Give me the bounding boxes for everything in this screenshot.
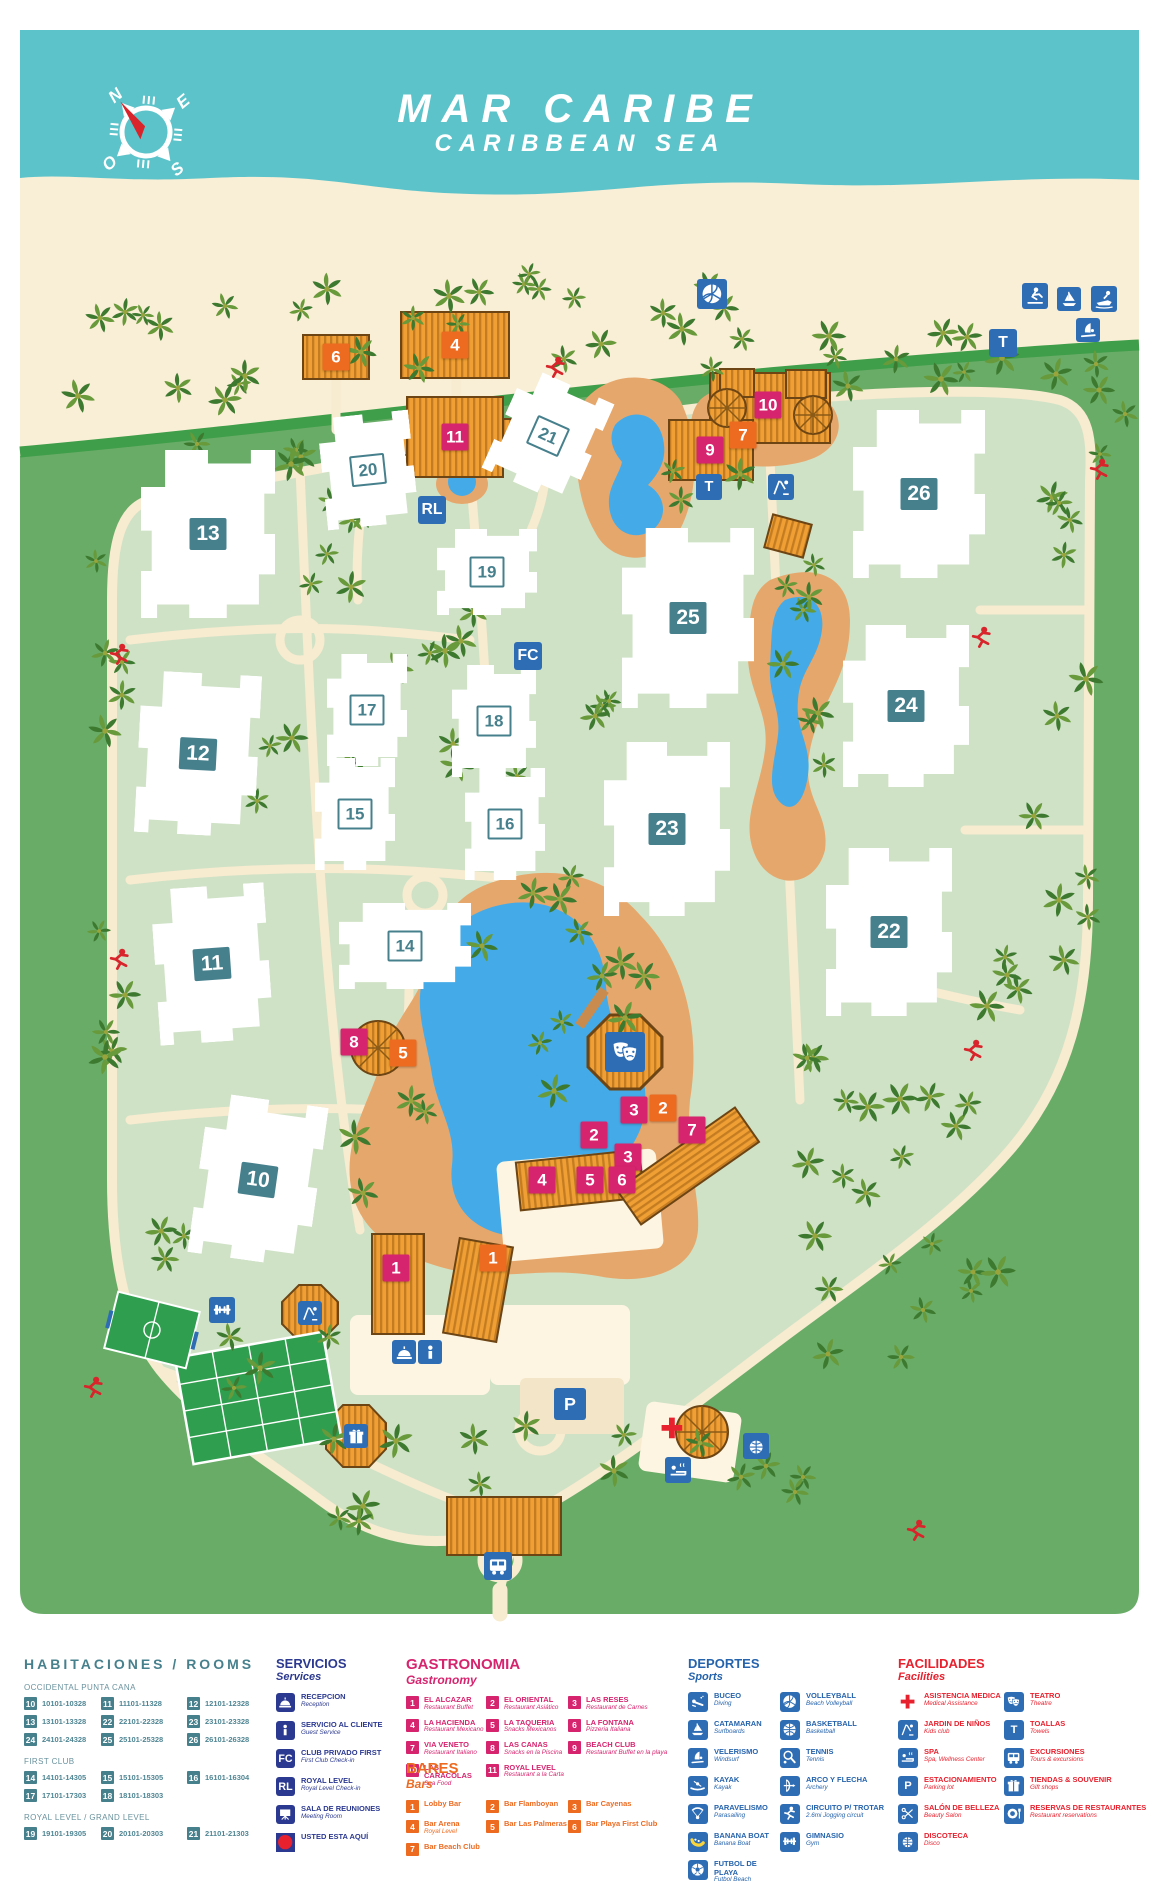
legend-item-volleyball: VOLLEYBALLBeach Volleyball: [780, 1692, 912, 1712]
legend-sublabel: Snacks en la Piscina: [504, 1750, 562, 1757]
legend-item-jardin-de-ni-os: JARDIN DE NIÑOSKids club: [898, 1720, 1004, 1740]
legend-rooms-title: HABITACIONES / ROOMS: [24, 1656, 259, 1672]
legend-item-arco-y-flecha: ARCO Y FLECHAArchery: [780, 1776, 912, 1796]
resort-map-graphic: [0, 0, 1159, 1650]
legend-sublabel: Restaurant Mexicano: [424, 1727, 484, 1734]
legend-gastronomy-title: GASTRONOMIA: [406, 1656, 680, 1673]
room-badge-13: 13: [24, 1715, 37, 1728]
legend-bars-title: BARES: [406, 1760, 680, 1777]
legend-item-bar-arena: 4Bar ArenaRoyal Level: [406, 1820, 486, 1836]
room-badge-15: 15: [101, 1771, 114, 1784]
legend-number-badge: 2: [486, 1800, 499, 1813]
legend-sublabel: Beach Volleyball: [806, 1701, 856, 1708]
restaurant-reservations-icon: [1004, 1804, 1024, 1824]
legend-column: 2Bar Flamboyan5Bar Las Palmeras: [486, 1800, 568, 1863]
legend-item-discoteca: DISCOTECADisco: [898, 1832, 1004, 1852]
gym-icon: [780, 1832, 800, 1852]
legend-item-estacionamiento: PESTACIONAMIENTOParking lot: [898, 1776, 1004, 1796]
room-range-24: 24101-24328: [42, 1735, 86, 1744]
reception-icon: [276, 1693, 295, 1712]
parasailing-icon: [688, 1804, 708, 1824]
legend-item-buceo: BUCEODiving: [688, 1692, 780, 1712]
legend-number-badge: 5: [486, 1719, 499, 1732]
room-range-entry: 1919101-19305: [24, 1827, 101, 1840]
legend-item-recepcion: RECEPCIONReception: [276, 1693, 401, 1712]
jogging-icon: [780, 1804, 800, 1824]
room-range-entry: 2020101-20303: [101, 1827, 187, 1840]
beauty-salon-icon: [898, 1804, 918, 1824]
room-range-entry: 2626101-26328: [187, 1733, 283, 1746]
legend-label: USTED ESTA AQUÍ: [301, 1833, 368, 1842]
legend-item-royal-level: RLROYAL LEVELRoyal Level Check-in: [276, 1777, 401, 1796]
room-group-royal-level-grand-level: ROYAL LEVEL / GRAND LEVEL: [24, 1813, 259, 1822]
legend-item-usted-esta-aqu: USTED ESTA AQUÍ: [276, 1833, 401, 1852]
towels-icon: T: [1004, 1720, 1024, 1740]
legend-facilities: FACILIDADES Facilities ASISTENCIA MEDICA…: [898, 1656, 1154, 1860]
legend-item-paravelismo: PARAVELISMOParasailing: [688, 1804, 780, 1824]
room-group-first-club: FIRST CLUB: [24, 1757, 259, 1766]
legend-sports-subtitle: Sports: [688, 1671, 912, 1683]
kids-club-icon: [898, 1720, 918, 1740]
room-range-grid: 1919101-193052020101-203032121101-21303: [24, 1827, 259, 1840]
legend-sublabel: Gift shops: [1030, 1785, 1112, 1792]
room-range-entry: 1414101-14305: [24, 1771, 101, 1784]
room-range-14: 14101-14305: [42, 1773, 86, 1782]
legend-column: BUCEODivingCATAMARANSurfboardsVELERISMOW…: [688, 1692, 780, 1892]
legend-sublabel: Futbol Beach: [714, 1877, 780, 1884]
legend-item-la-taqueria: 5LA TAQUERIASnacks Mexicanos: [486, 1719, 568, 1735]
legend-sublabel: Royal Level: [424, 1829, 460, 1836]
room-range-entry: 1010101-10328: [24, 1697, 101, 1710]
banana-boat-icon: [688, 1832, 708, 1852]
compass-east: E: [173, 90, 194, 112]
legend-item-toallas: TTOALLASTowels: [1004, 1720, 1154, 1740]
legend-sublabel: Restaurant de Carnes: [586, 1705, 648, 1712]
room-badge-22: 22: [101, 1715, 114, 1728]
legend-rooms: HABITACIONES / ROOMS OCCIDENTAL PUNTA CA…: [24, 1656, 259, 1840]
legend-sublabel: Reception: [301, 1702, 346, 1709]
compass-rose: N E S O: [72, 56, 220, 206]
legend-sublabel: Gym: [806, 1841, 844, 1848]
legend-sublabel: Spa, Wellness Center: [924, 1757, 985, 1764]
royal-level-checkin-icon: RL: [276, 1777, 295, 1796]
legend-label: Bar Playa First Club: [586, 1820, 657, 1829]
legend-sublabel: Disco: [924, 1841, 968, 1848]
basketball-icon: [780, 1720, 800, 1740]
legend-item-teatro: TEATROTheatre: [1004, 1692, 1154, 1712]
legend-number-badge: 1: [406, 1800, 419, 1813]
legend-sublabel: Basketball: [806, 1729, 857, 1736]
legend-services-title: SERVICIOS: [276, 1656, 401, 1671]
legend-number-badge: 3: [568, 1800, 581, 1813]
legend-item-bar-cayenas: 3Bar Cayenas: [568, 1800, 680, 1813]
legend-number-badge: 2: [486, 1696, 499, 1709]
legend-number-badge: 6: [568, 1820, 581, 1833]
room-range-grid: 1010101-103281111101-113281212101-123281…: [24, 1697, 259, 1746]
volleyball-icon: [780, 1692, 800, 1712]
gift-shop-icon: [1004, 1776, 1024, 1796]
legend-sublabel: Theatre: [1030, 1701, 1060, 1708]
legend-sublabel: Kids club: [924, 1729, 990, 1736]
legend-item-reservas-de-restaurantes: RESERVAS DE RESTAURANTESRestaurant reser…: [1004, 1804, 1154, 1824]
legend-sublabel: Parking lot: [924, 1785, 997, 1792]
parking-icon: P: [898, 1776, 918, 1796]
room-range-entry: 2525101-25328: [101, 1733, 187, 1746]
resort-map-page: MAR CARIBE CARIBBEAN SEA N E S O 13: [0, 0, 1159, 1896]
legend-item-club-privado-first: FCCLUB PRIVADO FIRSTFirst Club Check-in: [276, 1749, 401, 1768]
legend-services-subtitle: Services: [276, 1671, 401, 1683]
legend-number-badge: 4: [406, 1820, 419, 1833]
room-range-18: 18101-18303: [119, 1791, 163, 1800]
guest-service-icon: [276, 1721, 295, 1740]
legend-sports: DEPORTES Sports BUCEODivingCATAMARANSurf…: [688, 1656, 912, 1892]
room-badge-24: 24: [24, 1733, 37, 1746]
legend-sublabel: Restaurant Italiano: [424, 1750, 477, 1757]
legend-number-badge: 3: [568, 1696, 581, 1709]
legend-item-futbol-de-playa: FUTBOL DE PLAYAFutbol Beach: [688, 1860, 780, 1884]
room-range-entry: 1212101-12328: [187, 1697, 283, 1710]
room-badge-23: 23: [187, 1715, 200, 1728]
sea-title: MAR CARIBE CARIBBEAN SEA: [330, 88, 830, 158]
legend-item-tiendas-souvenir: TIENDAS & SOUVENIRGift shops: [1004, 1776, 1154, 1796]
legend-number-badge: 1: [406, 1696, 419, 1709]
legend-item-servicio-al-cliente: SERVICIO AL CLIENTEGuest Service: [276, 1721, 401, 1740]
room-badge-14: 14: [24, 1771, 37, 1784]
room-range-26: 26101-26328: [205, 1735, 249, 1744]
room-range-23: 23101-23328: [205, 1717, 249, 1726]
theatre-icon: [1004, 1692, 1024, 1712]
legend-item-spa: SPASpa, Wellness Center: [898, 1748, 1004, 1768]
room-range-11: 11101-11328: [119, 1699, 162, 1708]
room-range-entry: 1616101-16304: [187, 1771, 283, 1784]
legend-item-las-reses: 3LAS RESESRestaurant de Carnes: [568, 1696, 680, 1712]
sea-title-english: CARIBBEAN SEA: [330, 130, 830, 158]
legend-sublabel: Restaurant reservations: [1030, 1813, 1146, 1820]
room-range-15: 15101-15305: [119, 1773, 163, 1782]
room-badge-20: 20: [101, 1827, 114, 1840]
room-badge-19: 19: [24, 1827, 37, 1840]
room-badge-21: 21: [187, 1827, 200, 1840]
room-range-16: 16101-16304: [205, 1773, 249, 1782]
legend-item-sala-de-reuniones: SALA DE REUNIONESMeeting Room: [276, 1805, 401, 1824]
room-range-12: 12101-12328: [205, 1699, 249, 1708]
compass-south: S: [167, 158, 188, 180]
room-range-entry: 1717101-17303: [24, 1789, 101, 1802]
legend-item-beach-club: 9BEACH CLUBRestaurant Buffet en la playa: [568, 1741, 680, 1757]
legend-column: 1Lobby Bar4Bar ArenaRoyal Level7Bar Beac…: [406, 1800, 486, 1863]
room-group-occidental-punta-cana: OCCIDENTAL PUNTA CANA: [24, 1683, 259, 1692]
legend-item-lobby-bar: 1Lobby Bar: [406, 1800, 486, 1813]
legend-facilities-subtitle: Facilities: [898, 1671, 1154, 1683]
spa-icon: [898, 1748, 918, 1768]
disco-icon: [898, 1832, 918, 1852]
room-range-17: 17101-17303: [42, 1791, 86, 1800]
legend-item-catamaran: CATAMARANSurfboards: [688, 1720, 780, 1740]
room-range-entry: 1515101-15305: [101, 1771, 187, 1784]
room-badge-16: 16: [187, 1771, 200, 1784]
legend-item-excursiones: EXCURSIONESTours & excursions: [1004, 1748, 1154, 1768]
legend-item-bar-playa-first-club: 6Bar Playa First Club: [568, 1820, 680, 1833]
legend-number-badge: 4: [406, 1719, 419, 1732]
legend-item-bar-las-palmeras: 5Bar Las Palmeras: [486, 1820, 568, 1833]
legend-item-tennis: TENNISTennis: [780, 1748, 912, 1768]
legend-sublabel: Royal Level Check-in: [301, 1786, 361, 1793]
room-range-grid: 1414101-143051515101-153051616101-163041…: [24, 1771, 259, 1802]
room-range-entry: 1111101-11328: [101, 1697, 187, 1710]
room-range-21: 21101-21303: [205, 1829, 249, 1838]
legend-item-asistencia-medica: ASISTENCIA MEDICAMedical Assistance: [898, 1692, 1004, 1712]
legend-sublabel: Meeting Room: [301, 1814, 380, 1821]
legend-column: VOLLEYBALLBeach VolleyballBASKETBALLBask…: [780, 1692, 912, 1892]
room-badge-17: 17: [24, 1789, 37, 1802]
legend-item-via-veneto: 7VIA VENETORestaurant Italiano: [406, 1741, 486, 1757]
legend-gastronomy-subtitle: Gastronomy: [406, 1673, 680, 1687]
kayak-icon: [688, 1776, 708, 1796]
legend-bars-subtitle: Bars: [406, 1777, 680, 1791]
legend-sublabel: Diving: [714, 1701, 741, 1708]
legend-item-bar-beach-club: 7Bar Beach Club: [406, 1843, 486, 1856]
room-badge-10: 10: [24, 1697, 37, 1710]
medical-assistance-icon: [898, 1692, 918, 1712]
room-range-entry: 2121101-21303: [187, 1827, 283, 1840]
legend-label: Bar Cayenas: [586, 1800, 631, 1809]
legend-sublabel: Medical Assistance: [924, 1701, 1001, 1708]
room-badge-12: 12: [187, 1697, 200, 1710]
legend-label: Bar Beach Club: [424, 1843, 480, 1852]
archery-icon: [780, 1776, 800, 1796]
legend-sublabel: Tours & excursions: [1030, 1757, 1085, 1764]
legend-services: SERVICIOS Services RECEPCIONReceptionSER…: [276, 1656, 401, 1861]
legend-sublabel: Restaurant Buffet en la playa: [586, 1750, 667, 1757]
legend-sublabel: Snacks Mexicanos: [504, 1727, 557, 1734]
legend-sublabel: Restaurant Buffet: [424, 1705, 473, 1712]
room-badge-11: 11: [101, 1697, 114, 1710]
legend-item-basketball: BASKETBALLBasketball: [780, 1720, 912, 1740]
windsurf-icon: [688, 1748, 708, 1768]
legend-number-badge: 5: [486, 1820, 499, 1833]
room-range-22: 22101-22328: [119, 1717, 163, 1726]
legend-sublabel: 2.6mi Jogging circuit: [806, 1813, 884, 1820]
legend-sublabel: Tennis: [806, 1757, 834, 1764]
legend-item-gimnasio: GIMNASIOGym: [780, 1832, 912, 1852]
compass-north: N: [105, 84, 127, 107]
room-range-entry: 2222101-22328: [101, 1715, 187, 1728]
legend-bars: BARES Bars 1Lobby Bar4Bar ArenaRoyal Lev…: [406, 1760, 680, 1863]
legend-item-la-fontana: 6LA FONTANAPizzeria Italiana: [568, 1719, 680, 1735]
legend-item-circuito-p-trotar: CIRCUITO P/ TROTAR2.6mi Jogging circuit: [780, 1804, 912, 1824]
legend-item-la-hacienda: 4LA HACIENDARestaurant Mexicano: [406, 1719, 486, 1735]
legend-sublabel: Banana Boat: [714, 1841, 769, 1848]
room-badge-26: 26: [187, 1733, 200, 1746]
legend-sports-title: DEPORTES: [688, 1656, 912, 1671]
legend-column: 3Bar Cayenas6Bar Playa First Club: [568, 1800, 680, 1863]
legend-item-sal-n-de-belleza: SALÓN DE BELLEZABeauty Salon: [898, 1804, 1004, 1824]
first-club-checkin-icon: FC: [276, 1749, 295, 1768]
legend-number-badge: 7: [406, 1741, 419, 1754]
beach-soccer-icon: [688, 1860, 708, 1880]
legend-sublabel: Kayak: [714, 1785, 739, 1792]
legend-item-el-alcazar: 1EL ALCAZARRestaurant Buffet: [406, 1696, 486, 1712]
legend-sublabel: Restaurant Asiático: [504, 1705, 558, 1712]
room-range-entry: 1313101-13328: [24, 1715, 101, 1728]
legend-sublabel: Windsurf: [714, 1757, 758, 1764]
legend-item-kayak: KAYAKKayak: [688, 1776, 780, 1796]
room-badge-25: 25: [101, 1733, 114, 1746]
legend-item-velerismo: VELERISMOWindsurf: [688, 1748, 780, 1768]
legend-number-badge: 9: [568, 1741, 581, 1754]
legend-facilities-title: FACILIDADES: [898, 1656, 1154, 1671]
excursions-icon: [1004, 1748, 1024, 1768]
legend-item-el-oriental: 2EL ORIENTALRestaurant Asiático: [486, 1696, 568, 1712]
legend-number-badge: 7: [406, 1843, 419, 1856]
legend-label: Bar Flamboyan: [504, 1800, 558, 1809]
legend-sublabel: Archery: [806, 1785, 867, 1792]
legend-label: Bar Las Palmeras: [504, 1820, 567, 1829]
legend-column: ASISTENCIA MEDICAMedical AssistanceJARDI…: [898, 1692, 1004, 1860]
meeting-room-icon: [276, 1805, 295, 1824]
legend-sublabel: Parasailing: [714, 1813, 768, 1820]
tennis-icon: [780, 1748, 800, 1768]
legend-item-banana-boat: BANANA BOATBanana Boat: [688, 1832, 780, 1852]
compass-needle: [113, 99, 149, 139]
sea-title-spanish: MAR CARIBE: [330, 88, 830, 130]
you-are-here-dot: [276, 1833, 295, 1852]
legend-column: TEATROTheatreTTOALLASTowelsEXCURSIONESTo…: [1004, 1692, 1154, 1860]
legend-sublabel: Towels: [1030, 1729, 1065, 1736]
room-range-19: 19101-19305: [42, 1829, 86, 1838]
legend-sublabel: Guest Service: [301, 1730, 383, 1737]
legend-number-badge: 6: [568, 1719, 581, 1732]
legend-sublabel: Beauty Salon: [924, 1813, 999, 1820]
legend-sublabel: Pizzeria Italiana: [586, 1727, 634, 1734]
room-range-25: 25101-25328: [119, 1735, 163, 1744]
room-range-entry: 2323101-23328: [187, 1715, 283, 1728]
diving-icon: [688, 1692, 708, 1712]
legend-item-bar-flamboyan: 2Bar Flamboyan: [486, 1800, 568, 1813]
room-range-entry: 1818101-18303: [101, 1789, 187, 1802]
room-range-13: 13101-13328: [42, 1717, 86, 1726]
legend-label: Lobby Bar: [424, 1800, 461, 1809]
upper-pool: [609, 415, 664, 536]
room-range-20: 20101-20303: [119, 1829, 163, 1838]
legend-number-badge: 8: [486, 1741, 499, 1754]
room-range-entry: 2424101-24328: [24, 1733, 101, 1746]
room-range-10: 10101-10328: [42, 1699, 86, 1708]
legend-sublabel: First Club Check-in: [301, 1758, 381, 1765]
legend-item-las-canas: 8LAS CANASSnacks en la Piscina: [486, 1741, 568, 1757]
legend-label: FUTBOL DE PLAYA: [714, 1860, 780, 1877]
room-badge-18: 18: [101, 1789, 114, 1802]
legend-sublabel: Surfboards: [714, 1729, 762, 1736]
catamaran-icon: [688, 1720, 708, 1740]
